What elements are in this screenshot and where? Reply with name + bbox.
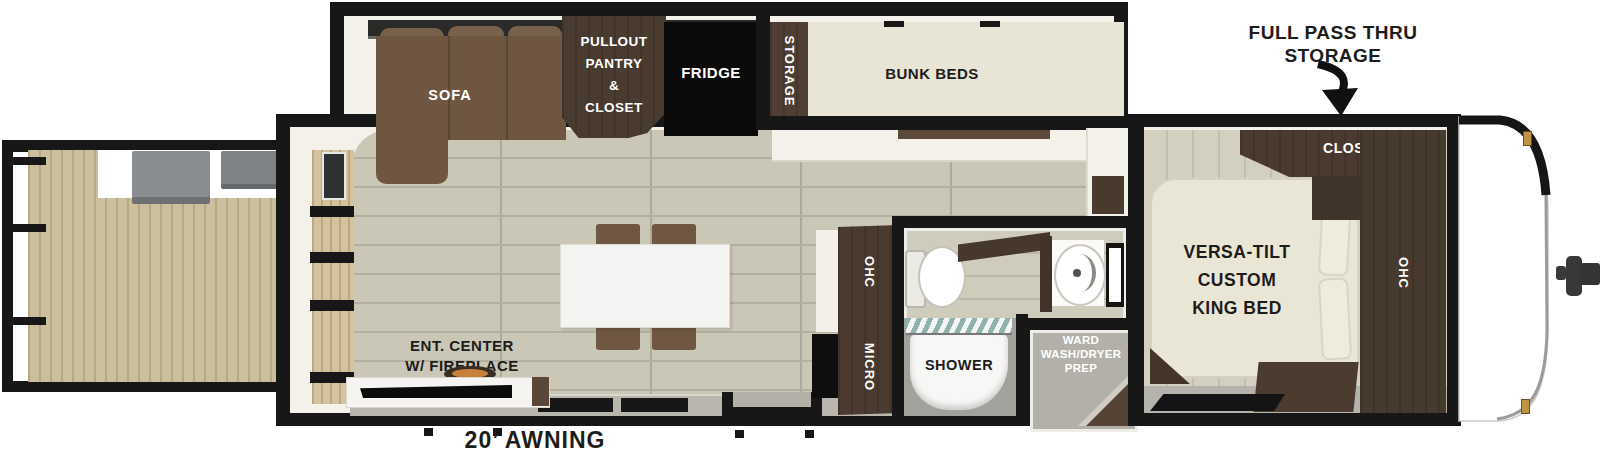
sink-drain <box>1073 269 1081 277</box>
entry-door-step <box>733 392 811 407</box>
ward-label-line: WASH/DRYER <box>1032 347 1130 361</box>
ward-label: WARD WASH/DRYER PREP <box>1032 333 1130 375</box>
hitch-nub <box>1556 266 1566 280</box>
bedroom-ohc-label: OHC <box>1396 257 1411 289</box>
curved-arrow-icon <box>1318 64 1344 94</box>
king-bed-label-line: VERSA-TILT <box>1137 238 1337 266</box>
pantry-label: PULLOUT PANTRY & CLOSET <box>564 31 664 119</box>
pantry-label-line: PULLOUT <box>564 31 664 53</box>
closet-lower-shelf <box>1312 176 1364 220</box>
window <box>621 398 688 412</box>
shower-curtain <box>906 318 1012 335</box>
cap-latch <box>1523 131 1532 146</box>
pass-thru-callout-line: FULL PASS THRU <box>1233 21 1433 44</box>
king-bed-label-line: CUSTOM <box>1137 266 1337 294</box>
ent-center-end-panel <box>532 377 549 406</box>
deck-rail-rung <box>12 157 46 165</box>
bedroom-window <box>1150 394 1285 411</box>
under-bunk-shelf-edge <box>898 130 1050 139</box>
rear-door-bar <box>310 252 354 263</box>
cap-latch <box>1521 399 1530 414</box>
deck-rail-left <box>2 140 13 392</box>
range-appliance <box>812 334 840 398</box>
dinette-table <box>560 244 730 328</box>
deck-rail-rung <box>12 224 46 232</box>
pass-thru-callout: FULL PASS THRU STORAGE <box>1233 21 1433 67</box>
front-cap-trim <box>1459 120 1546 195</box>
deck-rail-rung <box>12 317 46 325</box>
sofa-chaise <box>376 36 448 184</box>
hall-tv-panel <box>1092 176 1124 214</box>
pantry-label-line: PANTRY <box>564 53 664 75</box>
bath-window <box>1109 248 1121 302</box>
pass-thru-callout-line: STORAGE <box>1233 44 1433 67</box>
rear-door-bar <box>310 206 354 217</box>
bunk-handle <box>980 21 1000 27</box>
stabilizer-jack <box>493 428 502 436</box>
fridge-label: FRIDGE <box>664 64 758 82</box>
pantry-label-line: CLOSET <box>564 97 664 119</box>
king-bed-label: VERSA-TILT CUSTOM KING BED <box>1137 238 1337 322</box>
deck-rail-bottom <box>2 381 282 392</box>
bunk-bottom-wall <box>770 116 1128 130</box>
bunk-handle <box>884 21 904 27</box>
hitch-jack <box>1566 256 1582 296</box>
ward-label-line: WARD <box>1032 333 1130 347</box>
king-bed-label-line: KING BED <box>1137 294 1337 322</box>
slide-divider-wall <box>756 2 770 130</box>
ent-center-label-line: ENT. CENTER <box>372 336 552 356</box>
bunk-beds-label: BUNK BEDS <box>832 65 1032 83</box>
shower-label: SHOWER <box>908 357 1010 374</box>
storage-label: STORAGE <box>782 35 797 106</box>
floorplan-canvas: SOFA PULLOUT PANTRY & CLOSET FRIDGE STOR… <box>0 0 1600 452</box>
micro-label: MICRO <box>862 343 877 391</box>
bath-divider-wall <box>1040 236 1052 312</box>
awning-label: 20’ AWNING <box>430 427 640 452</box>
front-cap-edge <box>1497 195 1547 419</box>
rear-door-window <box>322 152 346 200</box>
pantry-label-line: & <box>564 75 664 97</box>
arrow-head-icon <box>1322 88 1358 116</box>
deck-bench <box>221 151 278 189</box>
kitchen-ohc-label: OHC <box>862 256 877 288</box>
kitchen-counter <box>816 230 840 332</box>
stabilizer-jack <box>805 430 814 438</box>
ward-label-line: PREP <box>1032 361 1130 375</box>
deck-bench <box>132 151 210 204</box>
front-cap <box>1459 117 1548 421</box>
sofa-label: SOFA <box>380 87 520 104</box>
stabilizer-jack <box>735 430 744 438</box>
stabilizer-jack <box>424 428 433 436</box>
rear-door-bar <box>310 300 354 311</box>
hitch-arm <box>1580 263 1600 285</box>
